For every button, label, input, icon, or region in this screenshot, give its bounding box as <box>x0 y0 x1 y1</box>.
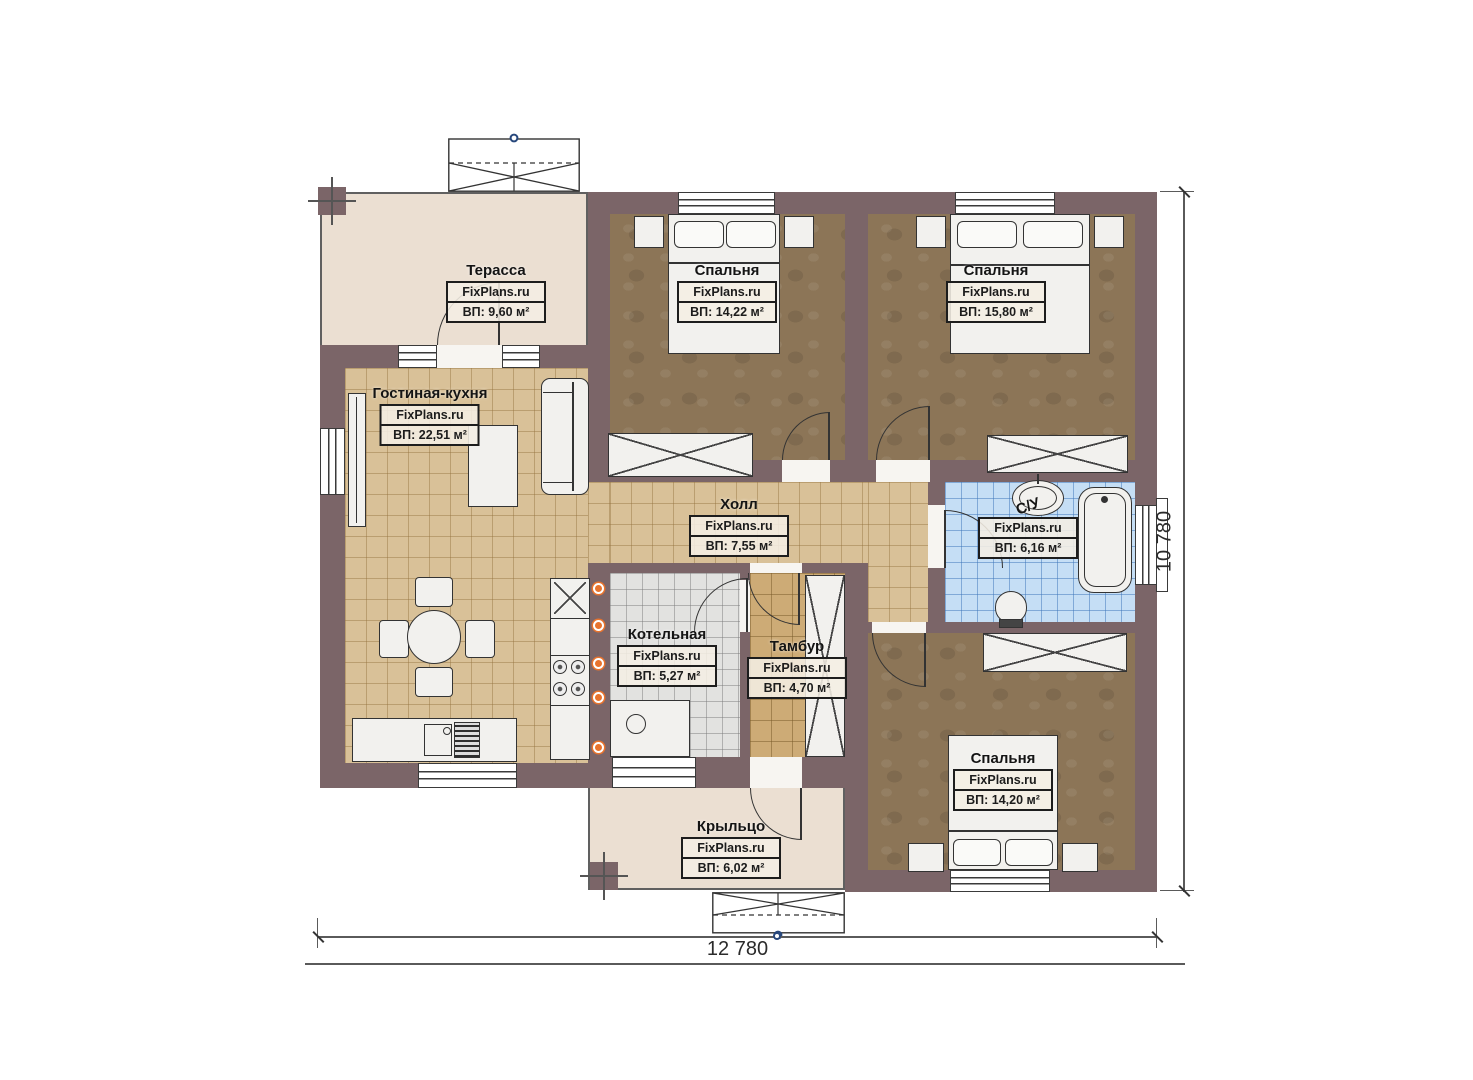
kitchen-counter-div3 <box>551 705 589 706</box>
wall-wing-left <box>845 563 868 892</box>
room-label-living-kitchen: Гостиная-кухня FixPlans.ru ВП: 22,51 м² <box>373 385 488 446</box>
hall-vestibule-door-leaf <box>798 573 800 625</box>
room-name-living-kitchen: Гостиная-кухня <box>373 385 488 402</box>
dim-width-text: 12 780 <box>700 938 775 961</box>
bedroom-3-window <box>950 870 1050 892</box>
hall-arm-floor <box>868 482 928 622</box>
area-vestibule: ВП: 4,70 м² <box>749 677 845 697</box>
kitchen-counter-div2 <box>551 655 589 656</box>
dim-ext-bottom-left <box>317 918 318 948</box>
sofa-armrest-bottom <box>543 482 573 483</box>
stove-burner-4 <box>571 682 585 696</box>
boiler-unit <box>626 714 646 734</box>
hall-passage-floor <box>588 482 610 565</box>
room-label-bedroom-3: Спальня FixPlans.ru ВП: 14,20 м² <box>953 750 1053 811</box>
dim-line-right <box>1183 192 1185 892</box>
dishwasher <box>454 722 480 758</box>
dim-height-text: 10 780 <box>1154 502 1177 582</box>
kitchen-sink-x <box>554 582 586 614</box>
bath-sink-tap <box>1037 474 1039 484</box>
bedroom-2-pillow-left <box>957 221 1017 248</box>
stove-burner-1 <box>553 660 567 674</box>
room-name-vestibule: Тамбур <box>747 638 847 655</box>
bedroom-1-nightstand-right <box>784 216 814 248</box>
room-name-bedroom-1: Спальня <box>677 262 777 279</box>
dining-table <box>407 610 461 664</box>
bedroom-3-wardrobe <box>983 633 1127 672</box>
bedroom-2-pillow-right <box>1023 221 1083 248</box>
watermark-terrace: FixPlans.ru <box>448 283 544 301</box>
watermark-bedroom-2: FixPlans.ru <box>948 283 1044 301</box>
kitchen-counter-div1 <box>551 618 589 619</box>
wall-bedrooms-divider <box>845 214 868 460</box>
room-label-terrace: Терасса FixPlans.ru ВП: 9,60 м² <box>446 262 546 323</box>
bathroom-door-opening <box>928 505 945 568</box>
label-box-bedroom-2: FixPlans.ru ВП: 15,80 м² <box>946 281 1046 323</box>
toilet-cistern <box>999 619 1023 628</box>
outlet-4 <box>593 692 604 703</box>
dining-chair-east <box>465 620 495 658</box>
bedroom-2-door-leaf <box>928 406 930 460</box>
label-box-living-kitchen: FixPlans.ru ВП: 22,51 м² <box>380 404 480 446</box>
label-box-terrace: FixPlans.ru ВП: 9,60 м² <box>446 281 546 323</box>
room-name-terrace: Терасса <box>446 262 546 279</box>
dim-ext-bottom-right <box>1156 918 1157 948</box>
bedroom-2-nightstand-right <box>1094 216 1124 248</box>
terrace-column-axis-v <box>331 177 333 225</box>
terrace-window-right <box>502 345 540 368</box>
porch-column-axis-v <box>603 852 605 900</box>
room-name-hall: Холл <box>689 496 789 513</box>
label-box-boiler-room: FixPlans.ru ВП: 5,27 м² <box>617 645 717 687</box>
bedroom-1-wardrobe <box>608 433 753 477</box>
front-door-opening <box>750 757 802 788</box>
bedroom-2-wardrobe <box>987 435 1128 473</box>
room-label-boiler-room: Котельная FixPlans.ru ВП: 5,27 м² <box>617 626 717 687</box>
tv-stand-line <box>356 397 357 523</box>
room-label-porch: Крыльцо FixPlans.ru ВП: 6,02 м² <box>681 818 781 879</box>
outlet-5 <box>593 742 604 753</box>
bedroom-1-pillow-left <box>674 221 724 248</box>
bathtub-inner <box>1084 493 1126 587</box>
bedroom-1-pillow-right <box>726 221 776 248</box>
wall-left <box>320 345 345 788</box>
label-box-bedroom-3: FixPlans.ru ВП: 14,20 м² <box>953 769 1053 811</box>
bathtub-tap <box>1101 496 1108 503</box>
room-name-porch: Крыльцо <box>681 818 781 835</box>
watermark-hall: FixPlans.ru <box>691 517 787 535</box>
area-living-kitchen: ВП: 22,51 м² <box>382 424 478 444</box>
wall-top <box>588 192 1157 214</box>
dining-chair-south <box>415 667 453 697</box>
sofa-back-line <box>572 382 574 491</box>
outlet-1 <box>593 583 604 594</box>
area-boiler-room: ВП: 5,27 м² <box>619 665 715 685</box>
bedroom-2-window <box>955 192 1055 214</box>
area-bedroom-1: ВП: 14,22 м² <box>679 301 775 321</box>
kitchen-sink-tap <box>443 727 451 735</box>
dim-ext-right-top <box>1160 191 1194 192</box>
dining-chair-west <box>379 620 409 658</box>
hall-vestibule-door-opening <box>750 563 802 573</box>
dim-line-bottom-outer <box>305 963 1185 965</box>
room-name-bedroom-2: Спальня <box>946 262 1046 279</box>
kitchen-window <box>418 763 517 788</box>
floor-plan: Терасса FixPlans.ru ВП: 9,60 м² Спальня … <box>0 0 1473 1080</box>
area-hall: ВП: 7,55 м² <box>691 535 787 555</box>
watermark-bedroom-1: FixPlans.ru <box>679 283 775 301</box>
area-bathroom: ВП: 6,16 м² <box>980 537 1076 557</box>
bedroom-3-door-leaf <box>924 633 926 687</box>
dim-dot-bottom <box>773 932 781 940</box>
room-label-vestibule: Тамбур FixPlans.ru ВП: 4,70 м² <box>747 638 847 699</box>
watermark-bedroom-3: FixPlans.ru <box>955 771 1051 789</box>
watermark-vestibule: FixPlans.ru <box>749 659 845 677</box>
bedroom-3-nightstand-right <box>1062 843 1098 872</box>
bedroom-1-nightstand-left <box>634 216 664 248</box>
bedroom-1-door-opening <box>782 460 830 482</box>
room-name-boiler-room: Котельная <box>617 626 717 643</box>
label-box-bedroom-1: FixPlans.ru ВП: 14,22 м² <box>677 281 777 323</box>
room-label-hall: Холл FixPlans.ru ВП: 7,55 м² <box>689 496 789 557</box>
wall-hall-boiler <box>588 563 845 573</box>
bathroom-door-leaf <box>944 510 946 568</box>
watermark-boiler-room: FixPlans.ru <box>619 647 715 665</box>
boiler-window <box>612 757 696 788</box>
front-door-leaf <box>800 788 802 840</box>
bedroom-2-nightstand-left <box>916 216 946 248</box>
terrace-window-left <box>398 345 437 368</box>
watermark-porch: FixPlans.ru <box>683 839 779 857</box>
bedroom-2-door-opening <box>876 460 930 482</box>
bedroom-3-door-opening <box>872 622 926 633</box>
outlet-2 <box>593 620 604 631</box>
bedroom-1-window <box>678 192 775 214</box>
sofa-armrest-top <box>543 392 573 393</box>
area-terrace: ВП: 9,60 м² <box>448 301 544 321</box>
wall-wing-inner-upper <box>588 192 610 482</box>
label-box-vestibule: FixPlans.ru ВП: 4,70 м² <box>747 657 847 699</box>
room-label-bedroom-1: Спальня FixPlans.ru ВП: 14,22 м² <box>677 262 777 323</box>
terrace-canopy-symbol <box>448 130 580 192</box>
dim-ext-right-bottom <box>1160 890 1194 891</box>
area-bedroom-3: ВП: 14,20 м² <box>955 789 1051 809</box>
outlet-3 <box>593 658 604 669</box>
stove-burner-2 <box>571 660 585 674</box>
watermark-living-kitchen: FixPlans.ru <box>382 406 478 424</box>
area-bedroom-2: ВП: 15,80 м² <box>948 301 1044 321</box>
stove-burner-3 <box>553 682 567 696</box>
dining-chair-north <box>415 577 453 607</box>
room-name-bedroom-3: Спальня <box>953 750 1053 767</box>
terrace-door-opening <box>437 345 502 368</box>
room-label-bedroom-2: Спальня FixPlans.ru ВП: 15,80 м² <box>946 262 1046 323</box>
boiler-counter <box>610 700 690 757</box>
living-left-window <box>320 428 345 495</box>
bedroom-3-blanket-line <box>949 830 1057 832</box>
label-box-hall: FixPlans.ru ВП: 7,55 м² <box>689 515 789 557</box>
room-label-bathroom: С/У FixPlans.ru ВП: 6,16 м² <box>978 498 1078 559</box>
boiler-door-leaf <box>746 578 748 632</box>
bedroom-3-pillow-right <box>1005 839 1053 866</box>
sofa <box>541 378 589 495</box>
area-porch: ВП: 6,02 м² <box>683 857 779 877</box>
bedroom-3-pillow-left <box>953 839 1001 866</box>
bedroom-3-nightstand-left <box>908 843 944 872</box>
bedroom-1-door-leaf <box>828 412 830 460</box>
label-box-porch: FixPlans.ru ВП: 6,02 м² <box>681 837 781 879</box>
